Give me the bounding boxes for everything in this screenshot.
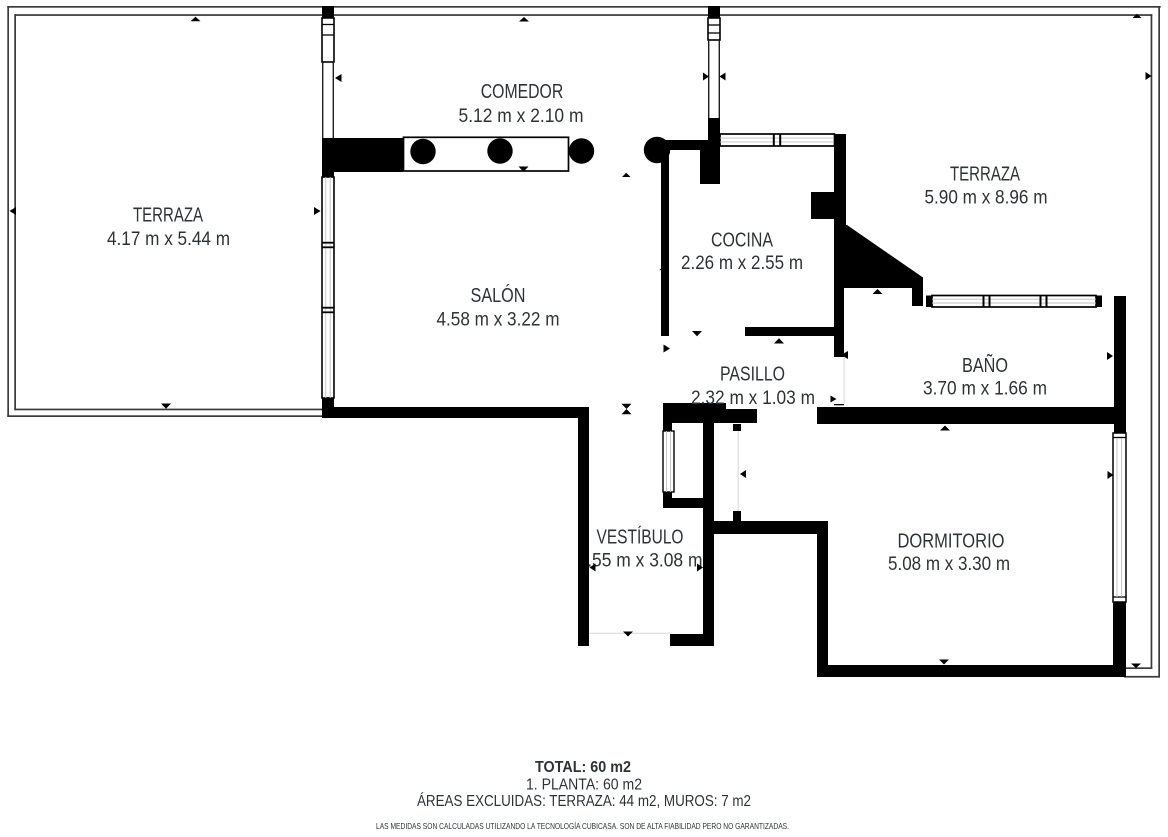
svg-text:3.70 m x 1.66 m: 3.70 m x 1.66 m [923,379,1047,400]
svg-text:2.32 m x 1.03 m: 2.32 m x 1.03 m [691,388,815,409]
svg-text:1. PLANTA: 60 m2: 1. PLANTA: 60 m2 [526,777,642,794]
svg-text:SALÓN: SALÓN [471,284,526,307]
svg-text:PASILLO: PASILLO [720,364,785,386]
svg-text:LAS MEDIDAS SON CALCULADAS UTI: LAS MEDIDAS SON CALCULADAS UTILIZANDO LA… [376,821,789,831]
svg-text:ÁREAS EXCLUIDAS: TERRAZA: 44 m: ÁREAS EXCLUIDAS: TERRAZA: 44 m2, MUROS: … [417,791,751,810]
svg-text:4.17 m x 5.44 m: 4.17 m x 5.44 m [107,229,230,250]
svg-text:2.26 m x 2.55 m: 2.26 m x 2.55 m [681,253,803,274]
svg-text:TERRAZA: TERRAZA [950,164,1020,186]
svg-text:4.58 m x 3.22 m: 4.58 m x 3.22 m [437,310,560,331]
svg-text:VESTÍBULO: VESTÍBULO [597,525,684,548]
svg-text:5.90 m x 8.96 m: 5.90 m x 8.96 m [925,188,1048,209]
svg-text:BAÑO: BAÑO [962,353,1008,377]
svg-text:2.55 m x 3.08 m: 2.55 m x 3.08 m [578,551,703,572]
svg-text:TERRAZA: TERRAZA [133,205,203,227]
svg-text:5.08 m x 3.30 m: 5.08 m x 3.30 m [888,554,1010,575]
svg-text:TOTAL: 60 m2: TOTAL: 60 m2 [535,759,631,776]
svg-text:COCINA: COCINA [711,230,774,252]
svg-text:5.12 m x 2.10 m: 5.12 m x 2.10 m [459,106,584,127]
svg-text:DORMITORIO: DORMITORIO [898,531,1005,553]
svg-text:COMEDOR: COMEDOR [481,81,564,103]
